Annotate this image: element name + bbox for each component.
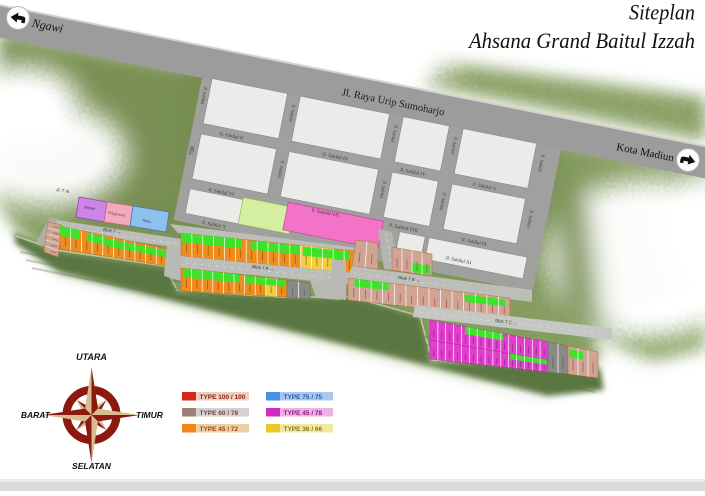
svg-text:TIMUR: TIMUR [136,410,164,420]
svg-text:UTARA: UTARA [76,352,107,362]
svg-text:TYPE 100 / 100: TYPE 100 / 100 [200,394,246,401]
svg-text:TYPE 75 / 75: TYPE 75 / 75 [284,394,323,401]
svg-text:TYPE 45 / 78: TYPE 45 / 78 [284,410,323,417]
svg-text:BARAT: BARAT [21,410,51,420]
svg-text:SELATAN: SELATAN [72,461,112,471]
svg-text:TYPE 60 / 78: TYPE 60 / 78 [200,410,239,417]
svg-text:Siteplan: Siteplan [629,0,695,25]
svg-text:Ahsana Grand Baitul Izzah: Ahsana Grand Baitul Izzah [467,28,695,53]
svg-text:TYPE 45 / 72: TYPE 45 / 72 [200,426,239,433]
svg-text:TYPE 36 / 66: TYPE 36 / 66 [284,426,323,433]
